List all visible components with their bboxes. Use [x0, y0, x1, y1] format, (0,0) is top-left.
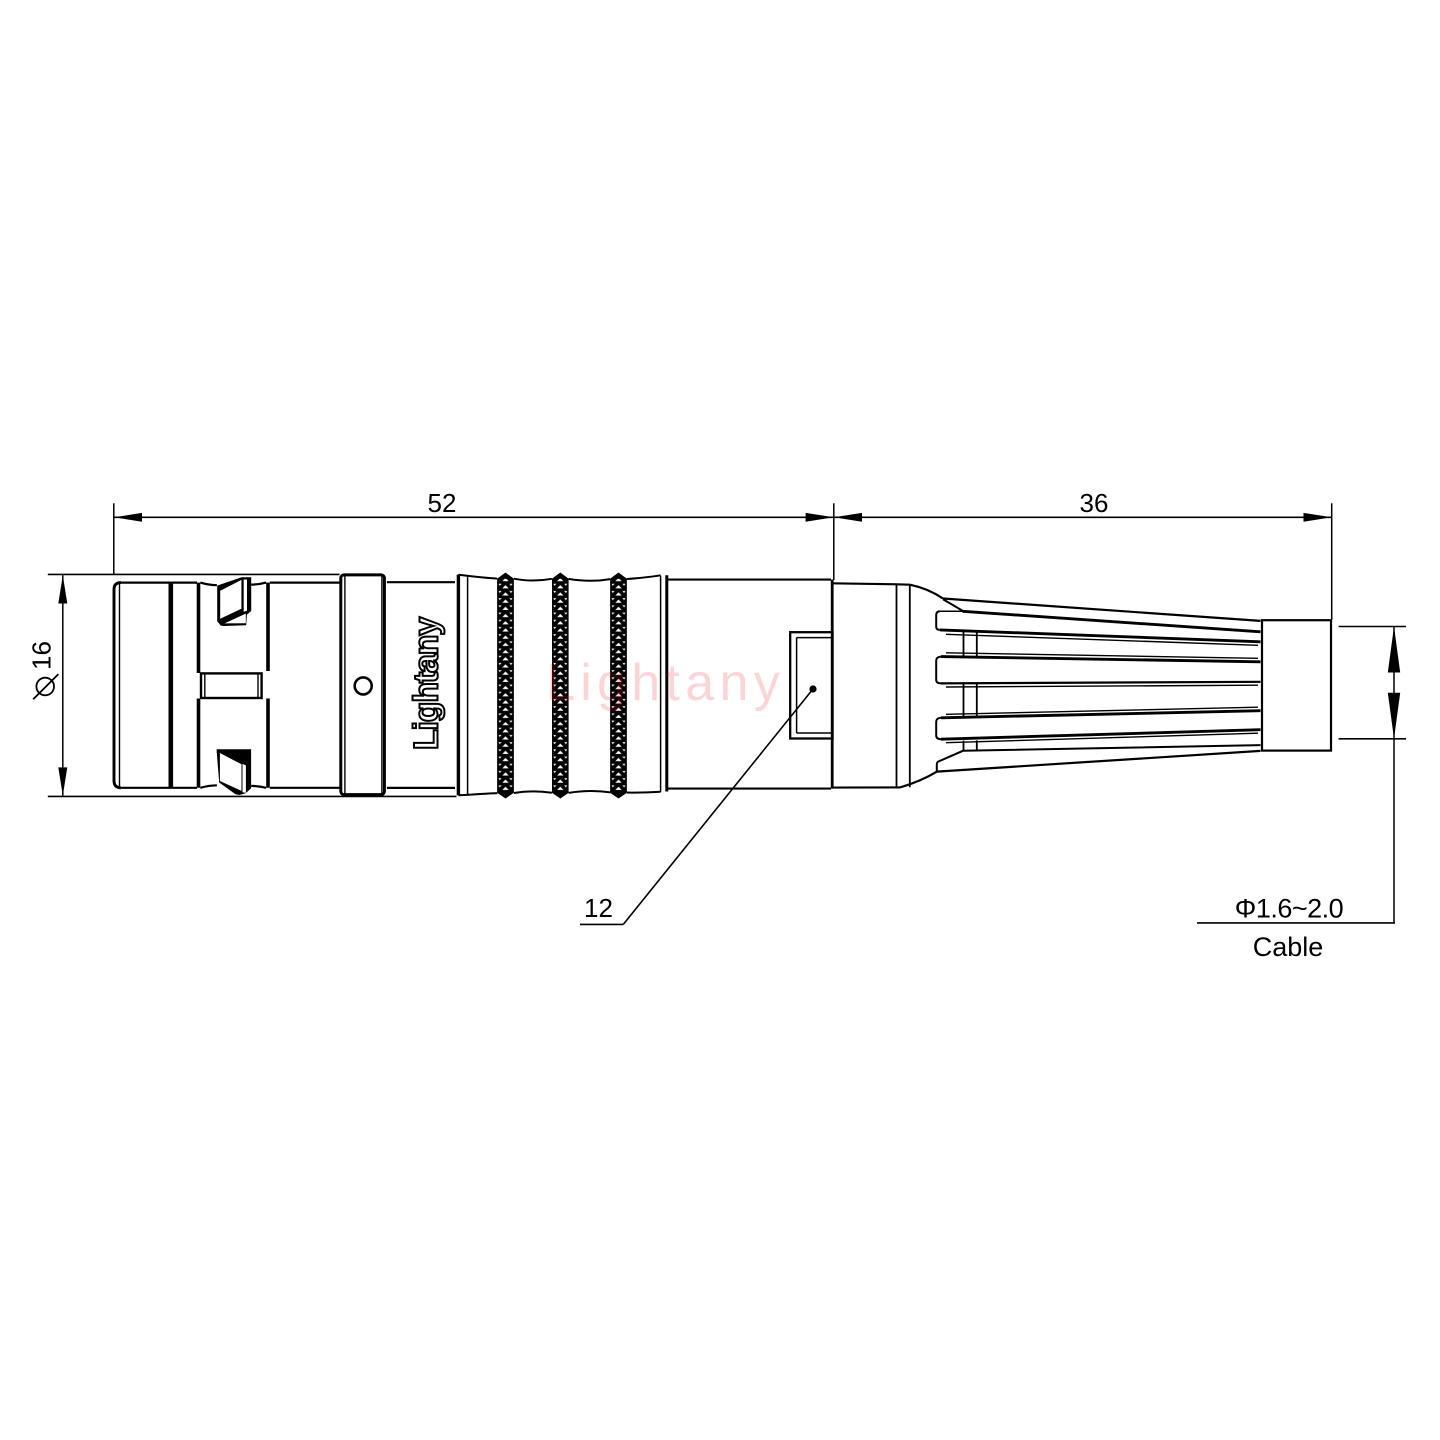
- svg-text:12: 12: [584, 893, 613, 923]
- svg-text:Cable: Cable: [1253, 932, 1324, 962]
- svg-text:16: 16: [27, 641, 57, 670]
- svg-text:Φ1.6~2.0: Φ1.6~2.0: [1235, 894, 1343, 924]
- svg-text:Lightany: Lightany: [408, 617, 446, 750]
- svg-text:36: 36: [1080, 488, 1109, 518]
- svg-text:52: 52: [428, 488, 457, 518]
- svg-text:Lightany: Lightany: [546, 654, 785, 712]
